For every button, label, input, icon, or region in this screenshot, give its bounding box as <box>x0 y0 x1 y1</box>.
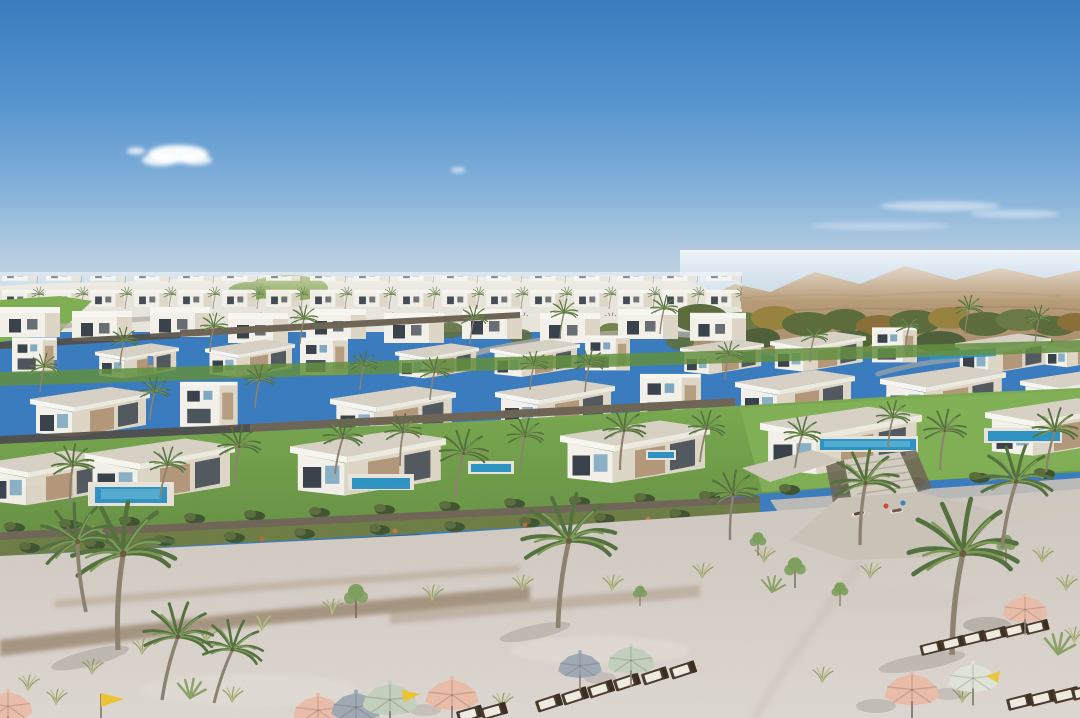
scene-canvas: Beachfront villa resort — aerial renderi… <box>0 0 1080 718</box>
beach-resort-rendering: Beachfront villa resort — aerial renderi… <box>0 0 1080 718</box>
beach-toy-red <box>884 504 889 509</box>
beach-toy-blue <box>901 501 906 506</box>
banner-flag <box>148 356 153 365</box>
